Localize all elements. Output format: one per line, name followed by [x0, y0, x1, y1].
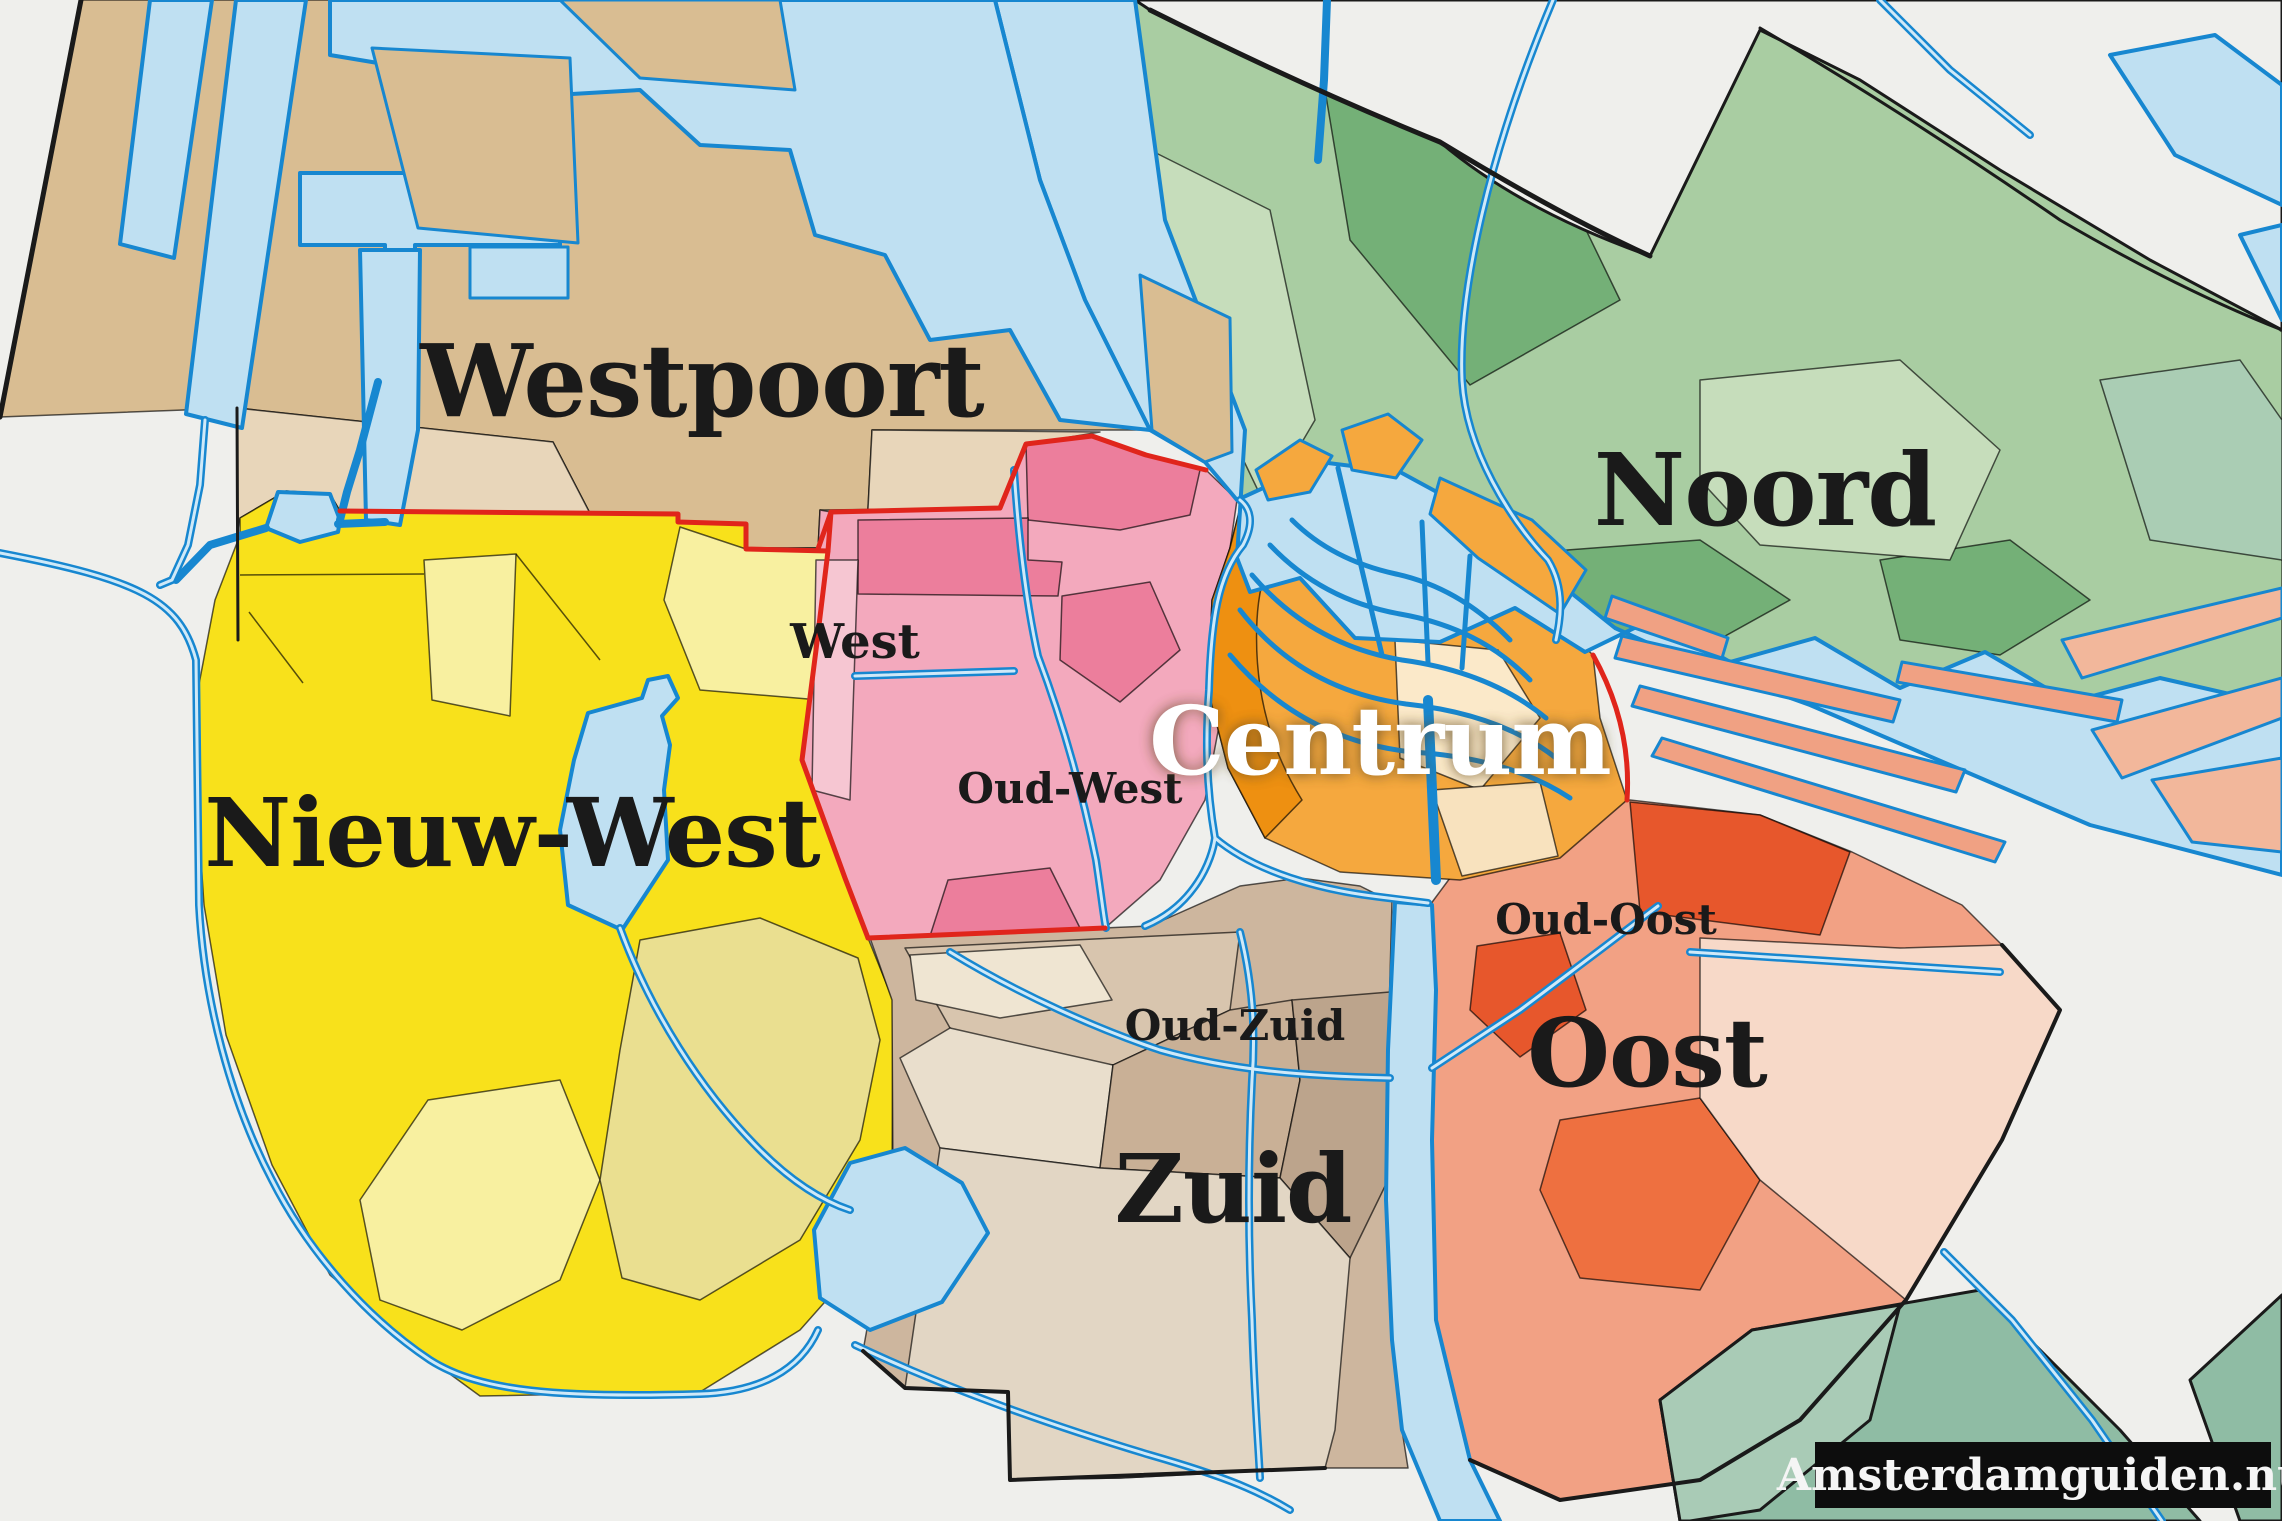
water-basin: [470, 247, 568, 298]
label-noord: Noord: [1594, 431, 1936, 549]
label-west: West: [789, 614, 920, 670]
label-oost: Oost: [1527, 998, 1768, 1109]
water-canal-junction: [266, 492, 340, 542]
label-centrum: Centrum: [1149, 686, 1611, 797]
watermark-text: Amsterdamguiden.nu: [1776, 1450, 2282, 1501]
amsterdam-district-map: Westpoort Noord Nieuw-West West Oud-West…: [0, 0, 2282, 1521]
region-nieuw-west-shade: [424, 554, 516, 716]
region-west-shade-light: [812, 560, 858, 800]
label-oud-oost: Oud-Oost: [1495, 895, 1717, 944]
label-nieuw-west: Nieuw-West: [204, 778, 820, 889]
label-oud-zuid: Oud-Zuid: [1125, 1001, 1345, 1050]
watermark: Amsterdamguiden.nu: [1776, 1442, 2282, 1508]
label-westpoort: Westpoort: [419, 322, 984, 440]
label-zuid: Zuid: [1115, 1134, 1352, 1245]
